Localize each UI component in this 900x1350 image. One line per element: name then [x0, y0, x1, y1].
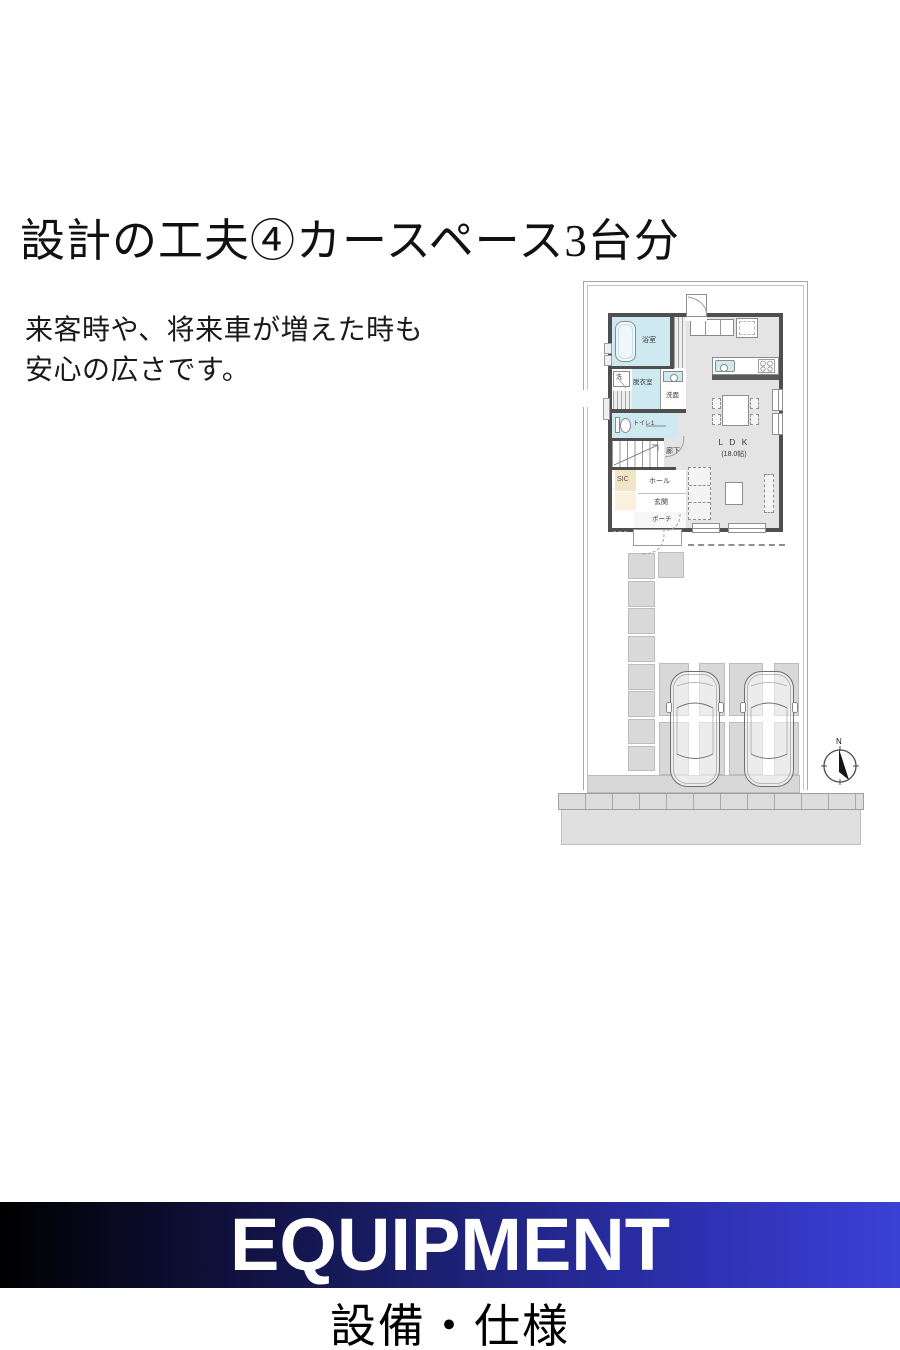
counter-hatch — [613, 391, 633, 409]
stepping-stone — [628, 608, 655, 634]
sofa-divider — [689, 485, 710, 486]
floor-plan: 浴室 洗 脱衣室 洗面 トイレ1 — [0, 0, 900, 1350]
stove — [758, 359, 775, 373]
compass-north-label: N — [836, 737, 842, 746]
dining-chair — [712, 398, 721, 409]
compass: N — [818, 734, 862, 788]
stepping-stone — [628, 664, 655, 690]
slide-page: 設計の工夫④カースペース3台分 来客時や、将来車が増えた時も 安心の広さです。 — [0, 0, 900, 1350]
exterior-unit — [603, 398, 610, 420]
stepping-stone — [628, 553, 655, 579]
basin-bowl — [670, 374, 678, 382]
coffee-table — [725, 482, 743, 505]
sofa — [688, 467, 711, 520]
window-sash — [693, 528, 719, 529]
bathtub — [615, 321, 636, 362]
stove-burners-icon — [758, 359, 775, 373]
sink-bowl — [720, 364, 728, 372]
window — [728, 523, 766, 533]
room-label-bath: 浴室 — [642, 337, 656, 344]
stepping-stone — [628, 636, 655, 662]
dining-chair — [750, 398, 759, 409]
wash-basin — [663, 371, 683, 382]
room-label-washroom: 洗面 — [666, 393, 679, 400]
room-label-sic: SIC — [617, 476, 629, 483]
dining-table — [722, 395, 749, 426]
car-icon — [740, 666, 798, 792]
stepping-stone — [628, 691, 655, 717]
room-label-washer: 洗 — [616, 375, 622, 381]
room-dressing — [632, 369, 660, 409]
room-label-dressing: 脱衣室 — [633, 380, 653, 387]
compass-north-icon: N — [818, 734, 862, 788]
refrigerator — [736, 318, 758, 338]
back-door — [686, 294, 707, 317]
house-outline: 浴室 洗 脱衣室 洗面 トイレ1 — [608, 313, 783, 532]
banner-title: EQUIPMENT — [230, 1208, 670, 1282]
section-banner: EQUIPMENT — [0, 1202, 900, 1288]
wall-hatch — [674, 317, 686, 368]
car-icon — [666, 666, 724, 792]
exterior-meter-box — [604, 343, 612, 354]
sidewalk — [558, 793, 864, 810]
car-1 — [666, 666, 724, 792]
exterior-meter-box — [604, 355, 612, 366]
site-gate-gap — [580, 390, 590, 407]
room-sic-lower — [615, 492, 636, 510]
stepping-stone — [658, 552, 684, 578]
banner-subtitle: 設備・仕様 — [0, 1290, 900, 1350]
room-label-entrance: 玄関 — [654, 499, 668, 506]
sofa-divider — [689, 502, 710, 503]
ldk-size-label: (18.0帖) — [704, 449, 764, 459]
window — [772, 389, 783, 411]
window-sash — [778, 414, 779, 434]
dining-chair — [712, 414, 721, 425]
car-2 — [740, 666, 798, 792]
room-label-porch: ポーチ — [652, 517, 672, 524]
window-sash — [729, 528, 765, 529]
refrigerator-inner — [739, 321, 755, 335]
room-label-corridor: 廊下 — [666, 448, 680, 455]
stairs-direction-icon — [612, 441, 664, 467]
overhang-dashed-line — [688, 544, 785, 546]
window — [772, 413, 783, 435]
stepping-stone — [628, 719, 655, 744]
bathtub-inner — [618, 324, 633, 359]
room-label-toilet: トイレ1 — [633, 421, 654, 427]
counter-front-wall — [712, 375, 779, 380]
ldk-label-block: L D K (18.0帖) — [704, 437, 764, 459]
toilet-bowl — [620, 418, 631, 433]
kitchen-sink — [715, 360, 735, 372]
window-sash — [778, 390, 779, 410]
road — [561, 810, 861, 845]
porch-step — [633, 529, 682, 546]
room-label-hall: ホール — [649, 478, 670, 485]
window — [692, 523, 720, 533]
kitchen-cupboard — [690, 319, 734, 336]
stepping-stone — [628, 746, 655, 771]
stepping-stone — [628, 581, 655, 607]
ldk-label: L D K — [704, 437, 764, 447]
dining-chair — [750, 414, 759, 425]
stairs — [612, 441, 664, 467]
tv-board — [764, 474, 774, 513]
dashed-line-left — [613, 531, 627, 532]
